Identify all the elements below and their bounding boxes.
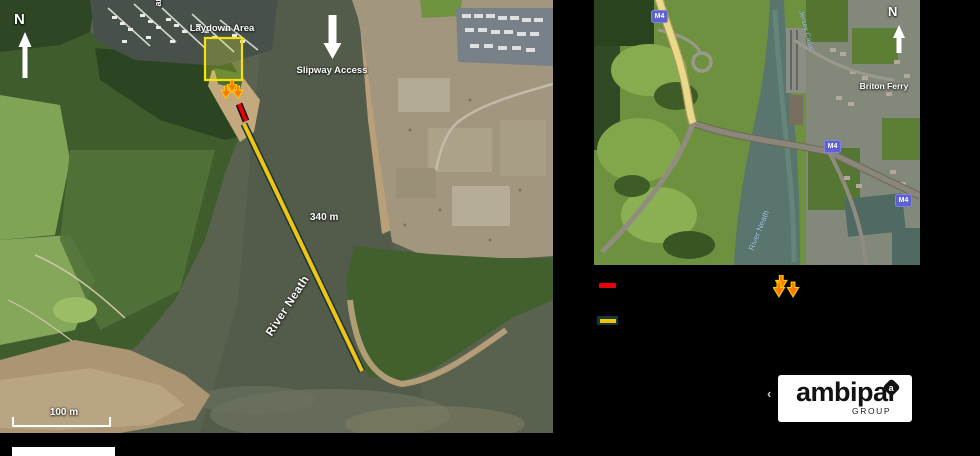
briton-ferry-label: Briton Ferry — [850, 81, 918, 91]
distance-label: 340 m — [310, 212, 338, 223]
logo-crop-mark: ‹ — [767, 386, 771, 401]
slipway-access-label: Slipway Access — [290, 65, 374, 76]
main-aerial-map: N anna Laydown Area Slipway Access 340 m… — [0, 0, 553, 433]
m4-shield-icon: M4 — [895, 194, 912, 207]
m4-shield-icon: M4 — [824, 140, 841, 153]
inset-location-map: N Briton Ferry Jersey Canal River Neath … — [594, 0, 920, 265]
north-label: N — [14, 11, 25, 28]
inset-north-label: N — [888, 4, 897, 19]
logo-group-text: GROUP — [852, 406, 891, 416]
site-plan-figure: N anna Laydown Area Slipway Access 340 m… — [0, 0, 980, 456]
laydown-area-label: Laydown Area — [186, 23, 258, 34]
logo-mark-letter: a — [889, 382, 894, 392]
ambipar-logo: ambipar a GROUP — [778, 375, 912, 422]
marina-vertical-label: anna — [153, 0, 163, 14]
logo-brand-text: ambipar — [796, 377, 898, 408]
scale-bar-label: 100 m — [36, 407, 92, 418]
legend-route-swatch — [597, 316, 618, 325]
legend-deployment-markers-icon — [773, 275, 803, 299]
m4-shield-icon: M4 — [651, 10, 668, 23]
legend-route-swatch-fill — [600, 319, 616, 323]
legend-boom-swatch — [599, 283, 616, 288]
main-aerial-imagery — [0, 0, 553, 433]
bottom-scale-bar-fragment — [12, 447, 115, 456]
